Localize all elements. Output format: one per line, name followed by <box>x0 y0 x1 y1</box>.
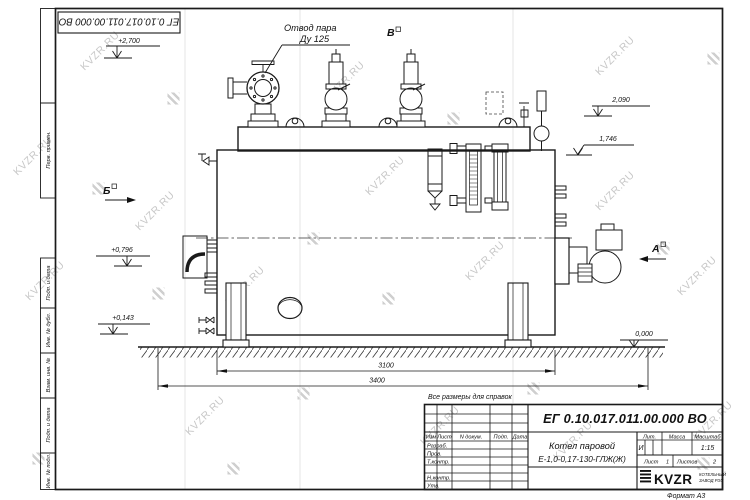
kvzr-logo-sub1: КОТЕЛЬНЫЙ <box>699 472 727 477</box>
kvzr-logo: KVZR КОТЕЛЬНЫЙ ЗАВОД РЭУ <box>640 470 727 487</box>
scale-value: 1:15 <box>701 445 715 452</box>
boiler-side-view <box>183 49 622 347</box>
col-list: Лист <box>436 435 452 441</box>
row-nkontr: Н.контр. <box>427 476 451 482</box>
steam-outlet-label: Отвод пара <box>284 23 337 33</box>
col-podp: Подп. <box>494 435 509 441</box>
burner-assembly <box>555 224 622 284</box>
phantom-outline <box>486 92 503 114</box>
view-b-arrow-icon <box>127 197 136 203</box>
col-izm: Изм <box>426 435 437 441</box>
steam-outlet-valve <box>228 61 279 127</box>
product-designation: Е-1,0-0,17-130-ГЛЖ(Ж) <box>538 455 626 464</box>
steam-outlet-dn-label: Ду 125 <box>299 34 330 44</box>
title-block: ЕГ 0.10.017.011.00.000 ВО Изм Лист N док… <box>425 405 727 490</box>
view-v-label: В <box>387 27 395 39</box>
reference-note: Все размеры для справок <box>428 393 513 401</box>
stamp-doc-number: ЕГ 0.10.017.011.00.000 ВО <box>58 16 179 27</box>
manhole <box>278 298 302 319</box>
format-label: Формат А3 <box>667 493 705 500</box>
lit-header: Лит. <box>642 435 656 441</box>
water-level-gauges <box>428 144 508 213</box>
sheet-value: 1 <box>666 460 669 466</box>
elevation-0143: +0,143 <box>112 315 134 322</box>
view-a-arrow-icon <box>639 256 648 262</box>
lit-value: И <box>638 445 644 452</box>
elevation-marks: +2,700 2,090 1,746 +0,796 +0,143 0,000 <box>96 38 668 347</box>
elevation-2090: 2,090 <box>611 97 630 104</box>
margin-field-inv-dubl: Инв. № дубл. <box>46 313 52 347</box>
col-data: Дата <box>512 435 528 441</box>
margin-field-podp-data: Подп. и дата <box>46 265 52 300</box>
right-wall-flanges <box>555 186 566 226</box>
sheet-label: Лист <box>643 460 659 466</box>
view-a-label: А <box>651 243 660 255</box>
support-legs <box>223 283 531 347</box>
mass-header: Масса <box>669 435 686 441</box>
row-tkontr: Т.контр. <box>427 460 450 466</box>
row-razrab: Разраб. <box>427 444 447 450</box>
drawing-sheet: KVZR.RU KVZR.RU KVZR.RU KVZR.RU KVZR.RU … <box>0 0 750 500</box>
pressure-gauge <box>486 91 549 151</box>
engineering-drawing: Перв. примен. Подп. и дата Инв. № дубл. … <box>0 0 750 500</box>
sheets-value: 2 <box>712 460 717 466</box>
row-utv: Утв. <box>426 484 440 490</box>
steam-outlet-callout: Отвод пара Ду 125 <box>265 23 350 73</box>
kvzr-logo-text: KVZR <box>654 472 692 487</box>
safety-valve-2 <box>397 49 425 127</box>
boiler-shell <box>217 150 555 335</box>
view-markers: В Б А <box>103 27 666 262</box>
dimension-3400: 3400 <box>369 378 385 385</box>
elevation-0796: +0,796 <box>111 247 133 254</box>
elevation-1746: 1,746 <box>599 136 617 143</box>
elevation-2700: +2,700 <box>118 38 140 45</box>
safety-valve-1 <box>322 49 350 127</box>
margin-field-perv-primen: Перв. примен. <box>46 131 52 168</box>
margin-field-inv-podl: Инв. № подл. <box>46 454 52 489</box>
elevation-0000: 0,000 <box>635 331 653 338</box>
fold-lines <box>185 9 513 489</box>
kvzr-logo-sub2: ЗАВОД РЭУ <box>699 478 725 483</box>
scale-header: Масштаб <box>694 435 721 441</box>
margin-field-podp-data2: Подп. и дата <box>46 407 52 442</box>
margin-field-vzam-inv: Взам. инв. № <box>46 358 52 393</box>
row-prov: Пров. <box>427 452 442 458</box>
product-name: Котел паровой <box>549 441 615 451</box>
view-b-label: Б <box>103 185 111 197</box>
titleblock-doc-number: ЕГ 0.10.017.011.00.000 ВО <box>543 411 707 426</box>
dimension-3100: 3100 <box>378 363 394 370</box>
boiler-top-plate <box>238 127 530 151</box>
col-ndoc: N докум. <box>460 435 483 441</box>
sheets-label: Листов <box>676 460 697 466</box>
rear-fittings <box>183 154 217 334</box>
margin-field-labels: Перв. примен. Подп. и дата Инв. № дубл. … <box>46 131 52 488</box>
